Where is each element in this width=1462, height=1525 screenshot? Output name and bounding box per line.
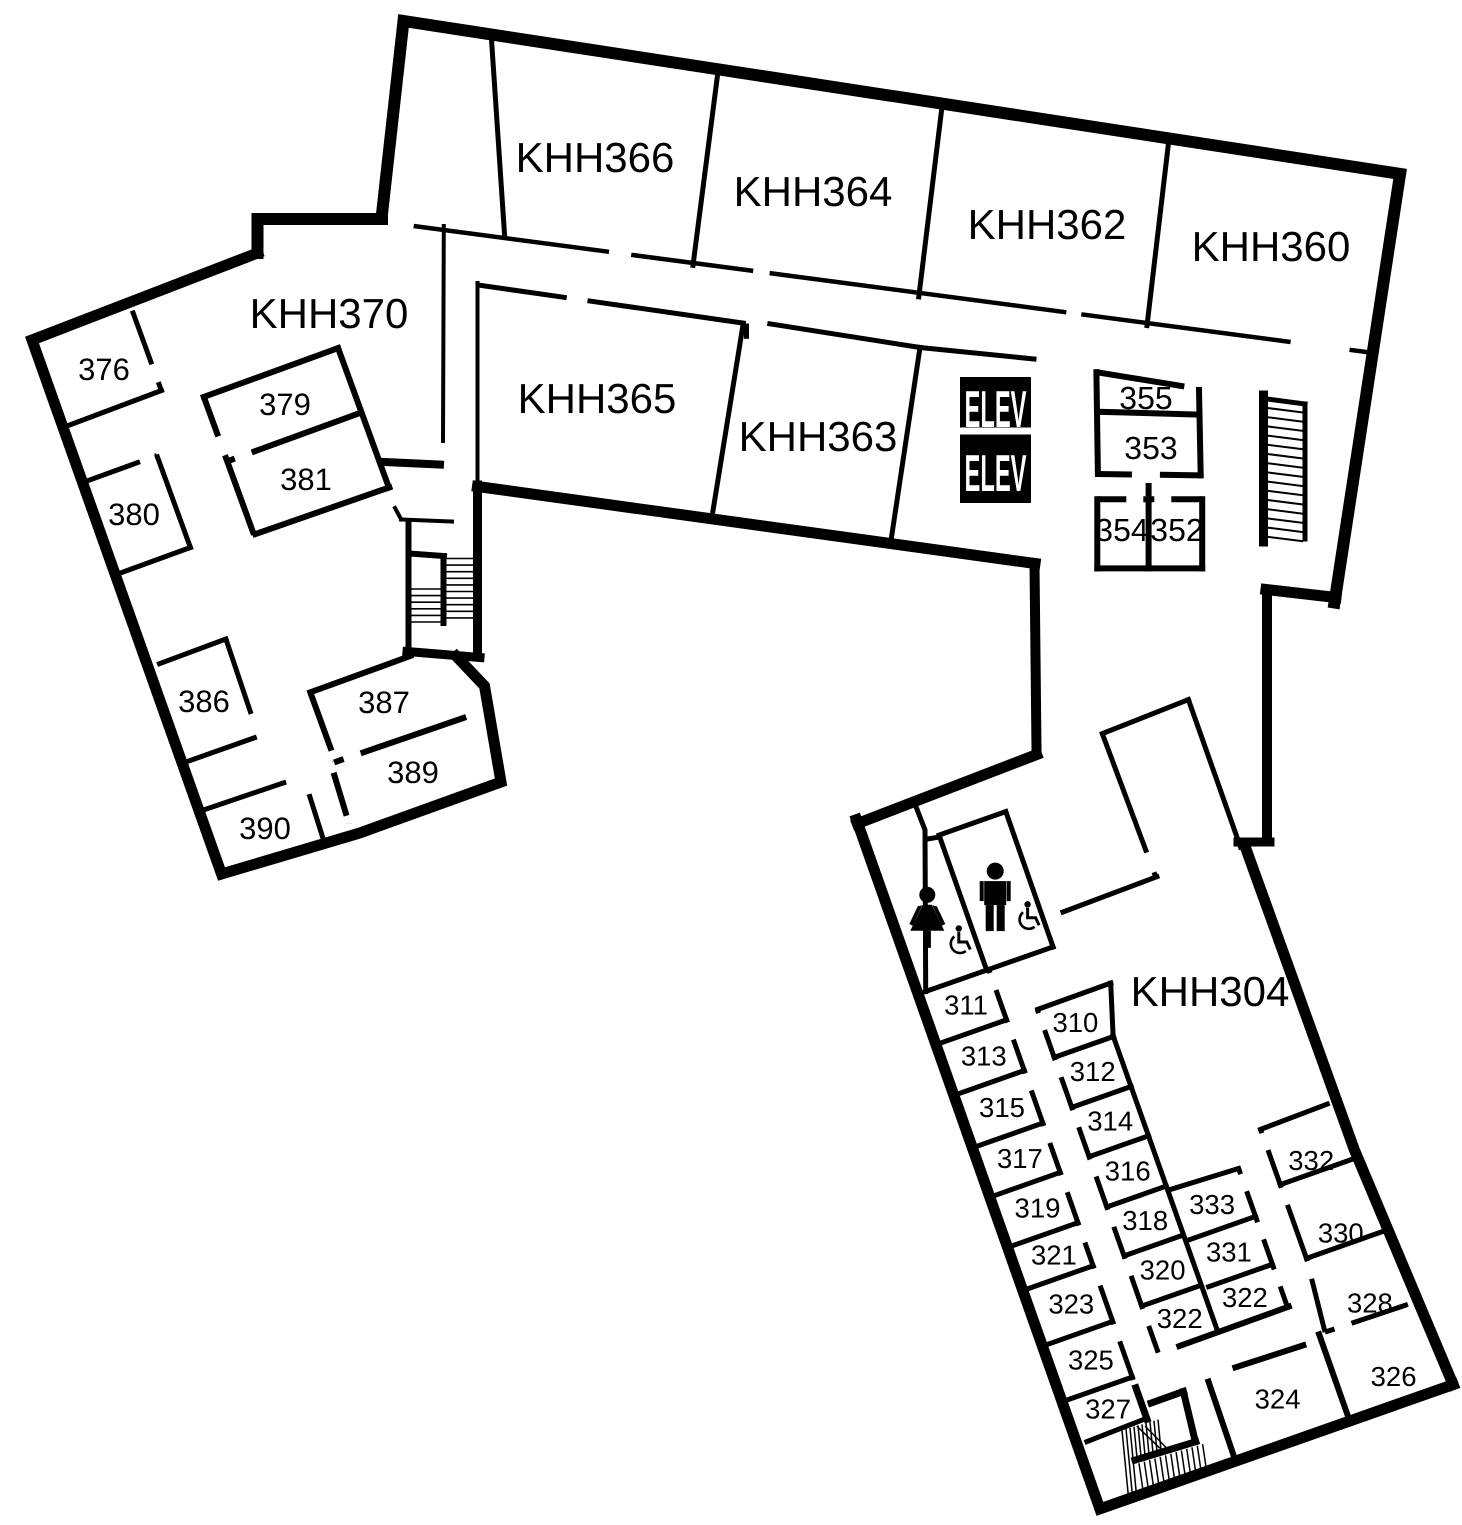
svg-text:KHH363: KHH363 [739,413,898,460]
svg-text:321: 321 [1031,1239,1077,1270]
svg-text:KHH360: KHH360 [1192,223,1351,270]
svg-text:KHH362: KHH362 [968,201,1127,248]
svg-text:KHH370: KHH370 [250,290,409,337]
svg-text:KHH366: KHH366 [516,134,675,181]
svg-text:KHH304: KHH304 [1131,968,1290,1015]
svg-text:317: 317 [997,1143,1043,1174]
svg-text:331: 331 [1206,1237,1252,1268]
svg-text:353: 353 [1124,430,1177,466]
svg-text:379: 379 [259,387,311,422]
svg-text:314: 314 [1087,1106,1133,1137]
svg-text:352: 352 [1150,512,1203,548]
svg-text:ELEV: ELEV [965,381,1027,439]
svg-text:376: 376 [78,352,130,387]
svg-text:327: 327 [1085,1393,1131,1424]
svg-text:312: 312 [1070,1056,1116,1087]
svg-text:333: 333 [1189,1189,1235,1220]
svg-text:319: 319 [1015,1193,1061,1224]
svg-text:330: 330 [1318,1217,1364,1248]
svg-text:389: 389 [387,755,439,790]
svg-text:310: 310 [1052,1007,1098,1038]
svg-text:390: 390 [239,811,291,846]
svg-text:KHH365: KHH365 [518,375,677,422]
svg-text:354: 354 [1095,512,1148,548]
svg-text:316: 316 [1105,1155,1151,1186]
svg-text:324: 324 [1255,1384,1301,1415]
svg-text:KHH364: KHH364 [734,168,893,215]
svg-text:ELEV: ELEV [965,445,1027,503]
svg-text:323: 323 [1048,1289,1094,1320]
svg-text:326: 326 [1371,1361,1417,1392]
svg-text:313: 313 [961,1040,1007,1071]
svg-text:325: 325 [1068,1344,1114,1375]
svg-text:318: 318 [1122,1205,1168,1236]
svg-text:328: 328 [1347,1288,1393,1319]
svg-text:311: 311 [944,990,988,1021]
svg-text:386: 386 [178,684,230,719]
svg-text:322: 322 [1157,1303,1203,1334]
svg-text:332: 332 [1288,1145,1334,1176]
svg-text:380: 380 [108,497,160,532]
svg-text:320: 320 [1140,1255,1186,1286]
svg-text:315: 315 [979,1092,1025,1123]
svg-text:387: 387 [358,685,410,720]
svg-text:322: 322 [1222,1282,1268,1313]
svg-text:381: 381 [280,462,332,497]
svg-text:355: 355 [1119,380,1172,416]
